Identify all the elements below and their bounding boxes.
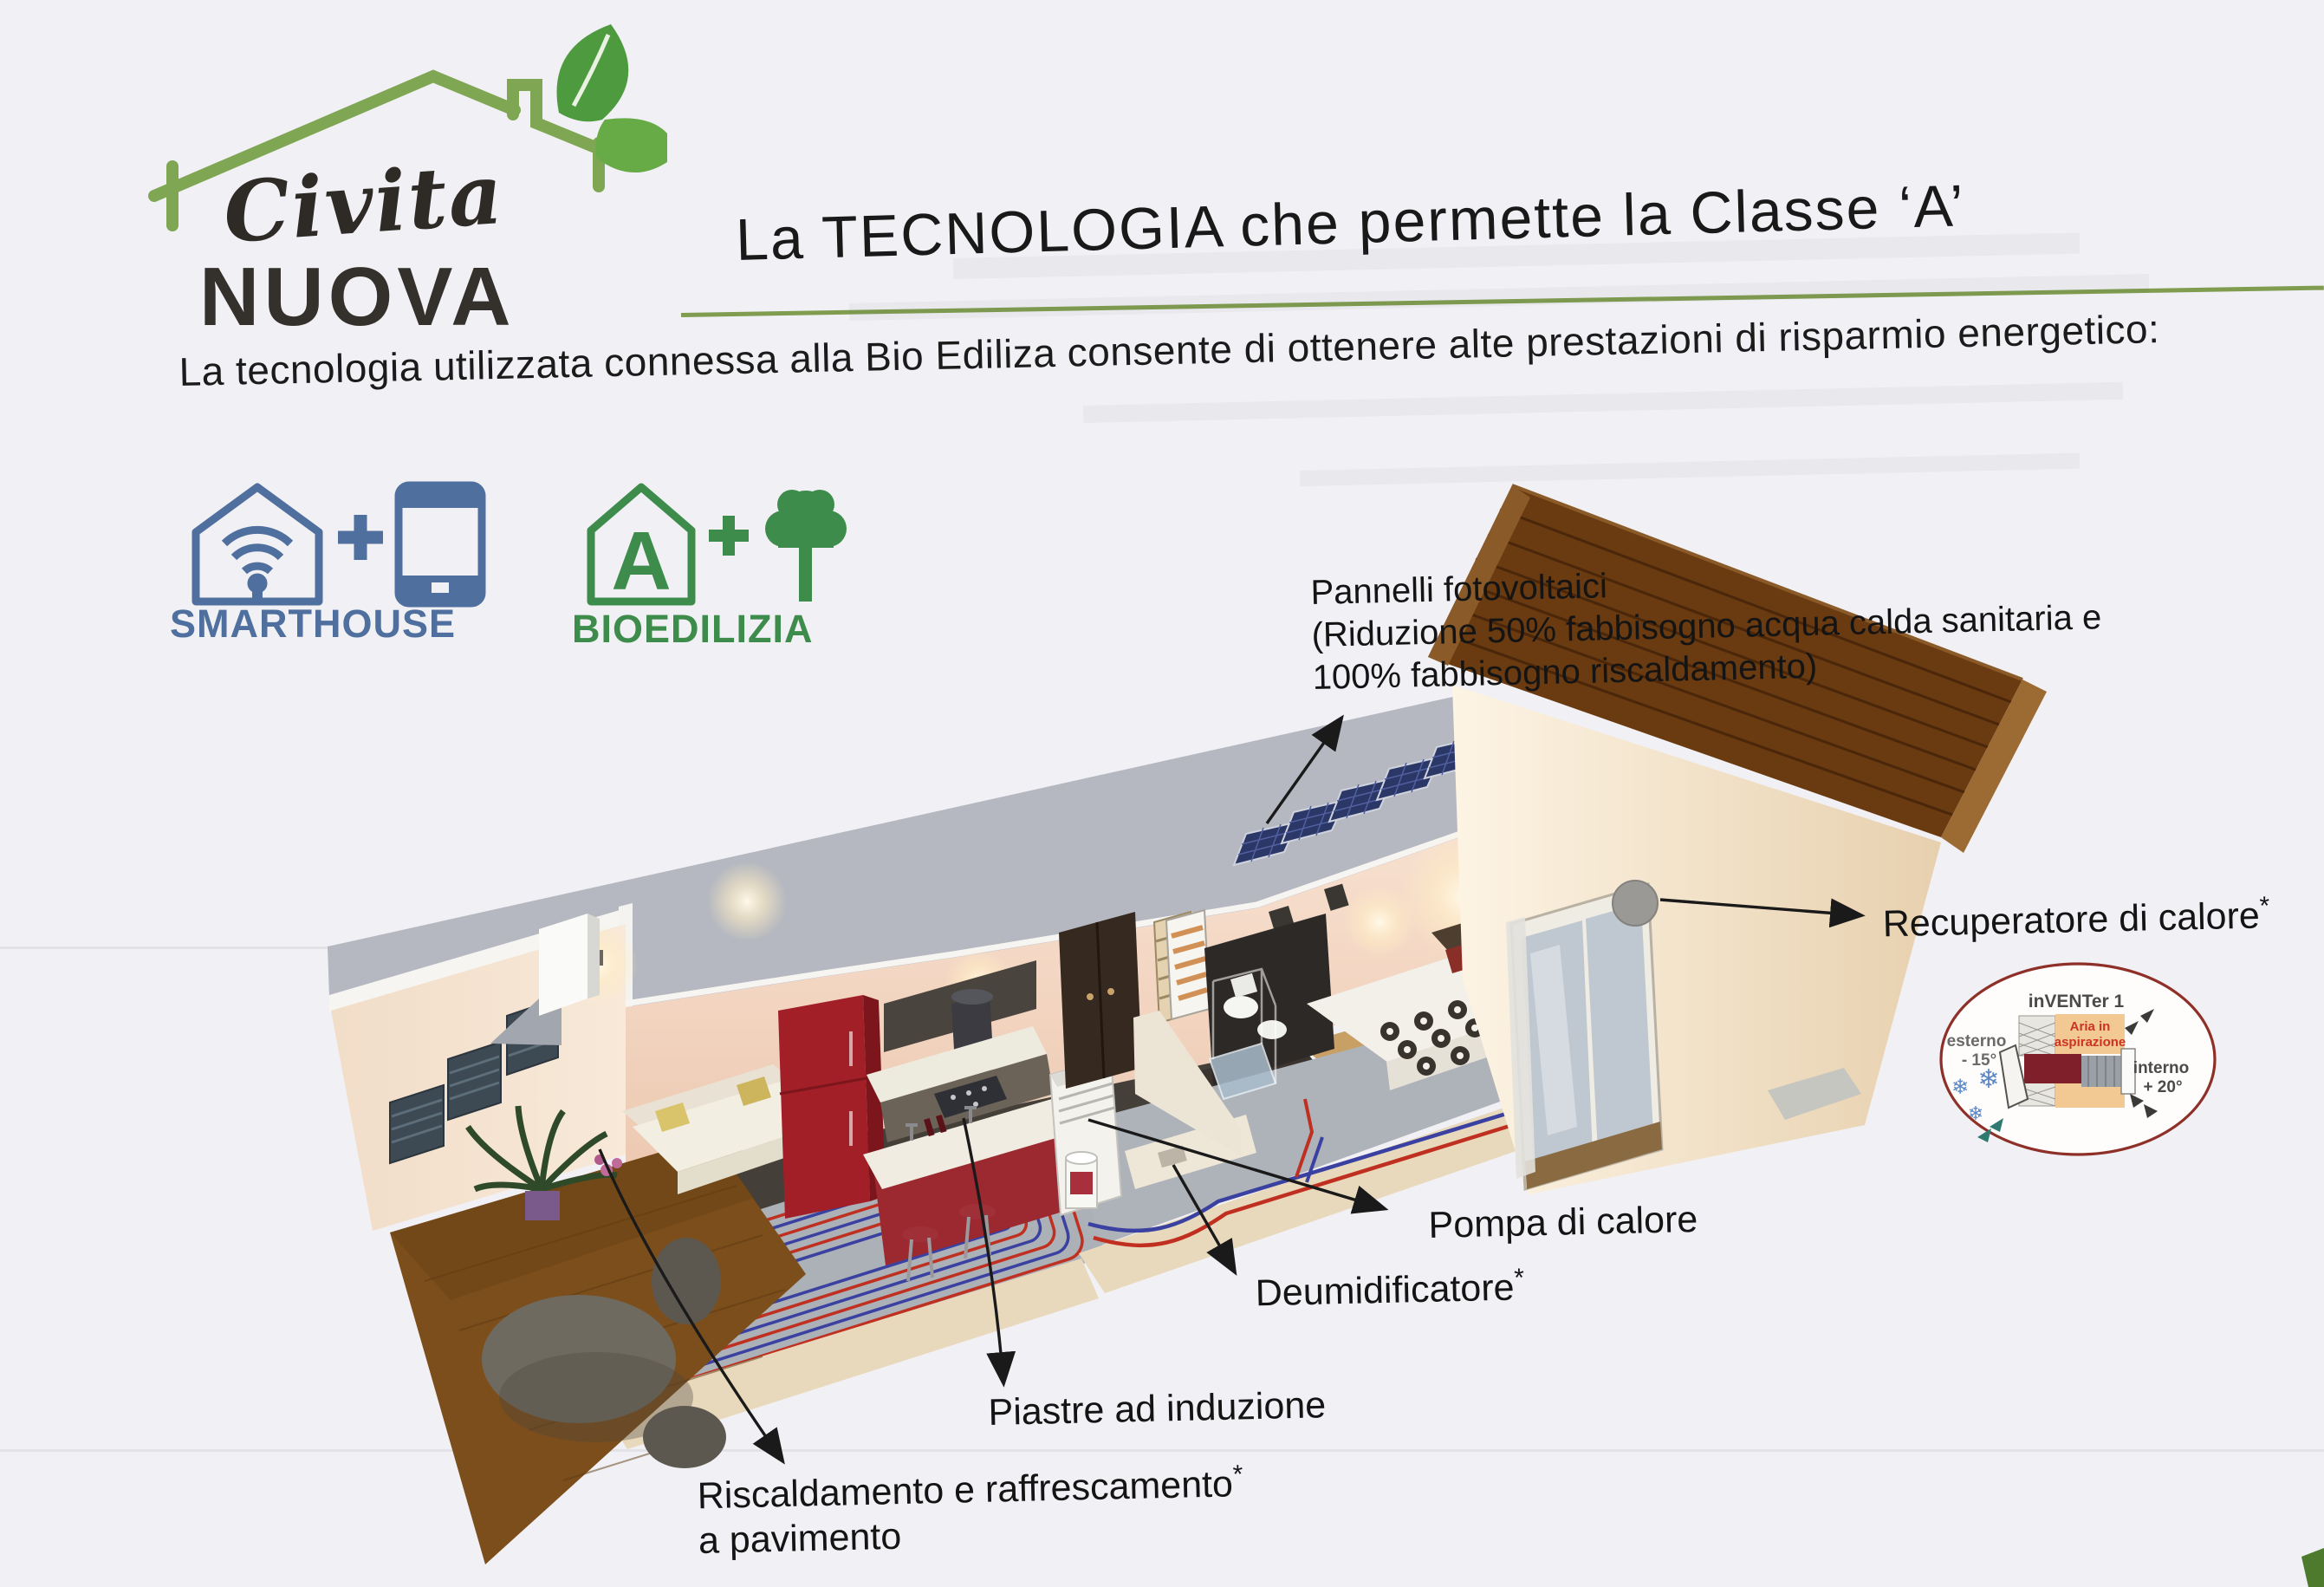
- menu-board: [1166, 910, 1210, 1019]
- airflow-label: aspirazione: [2055, 1035, 2126, 1050]
- house-cutaway-illustration: inVENTer 1 Aria in aspirazione esterno: [0, 0, 2324, 1587]
- snowflake-icon: ❄: [1977, 1064, 1999, 1095]
- inset-title: inVENTer 1: [2029, 992, 2125, 1011]
- snowflake-icon: ❄: [1968, 1103, 1983, 1125]
- callout-deumidificatore: Deumidificatore*: [1255, 1256, 1525, 1316]
- inside-temp: + 20°: [2143, 1078, 2182, 1096]
- heat-recovery-vent: [1613, 881, 1658, 926]
- callout-pompa-di-calore: Pompa di calore: [1428, 1197, 1698, 1248]
- callout-riscaldamento-a-pavimento: Riscaldamento e raffrescamento* a pavime…: [697, 1453, 1244, 1564]
- footnote-asterisk: *: [2259, 892, 2269, 920]
- dehumidifier-cylinder: [1066, 1152, 1097, 1208]
- red-refrigerator: [778, 995, 886, 1219]
- callout-piastre-ad-induzione: Piastre ad induzione: [988, 1382, 1327, 1435]
- scanned-brochure-page: Civita NUOVA La TECNOLOGIA che permette …: [0, 0, 2324, 1587]
- wardrobe: [1059, 912, 1142, 1089]
- airflow-label: Aria in: [2070, 1019, 2111, 1034]
- corner-green-mark: [2301, 1548, 2324, 1587]
- inside-label: interno: [2133, 1059, 2189, 1077]
- page-bleed-through: [849, 233, 2149, 486]
- snowflake-icon: ❄: [1951, 1075, 1969, 1099]
- callout-recuperatore-di-calore: Recuperatore di calore*: [1882, 884, 2270, 946]
- footnote-asterisk: *: [1232, 1460, 1243, 1489]
- terrace-chair: [643, 1406, 726, 1468]
- callout-pannelli-fotovoltaici: Pannelli fotovoltaici (Riduzione 50% fab…: [1310, 554, 2103, 699]
- outside-label: esterno: [1947, 1032, 2007, 1050]
- footnote-asterisk: *: [1514, 1264, 1524, 1292]
- inventer-inset-diagram: inVENTer 1 Aria in aspirazione esterno: [1941, 964, 2215, 1154]
